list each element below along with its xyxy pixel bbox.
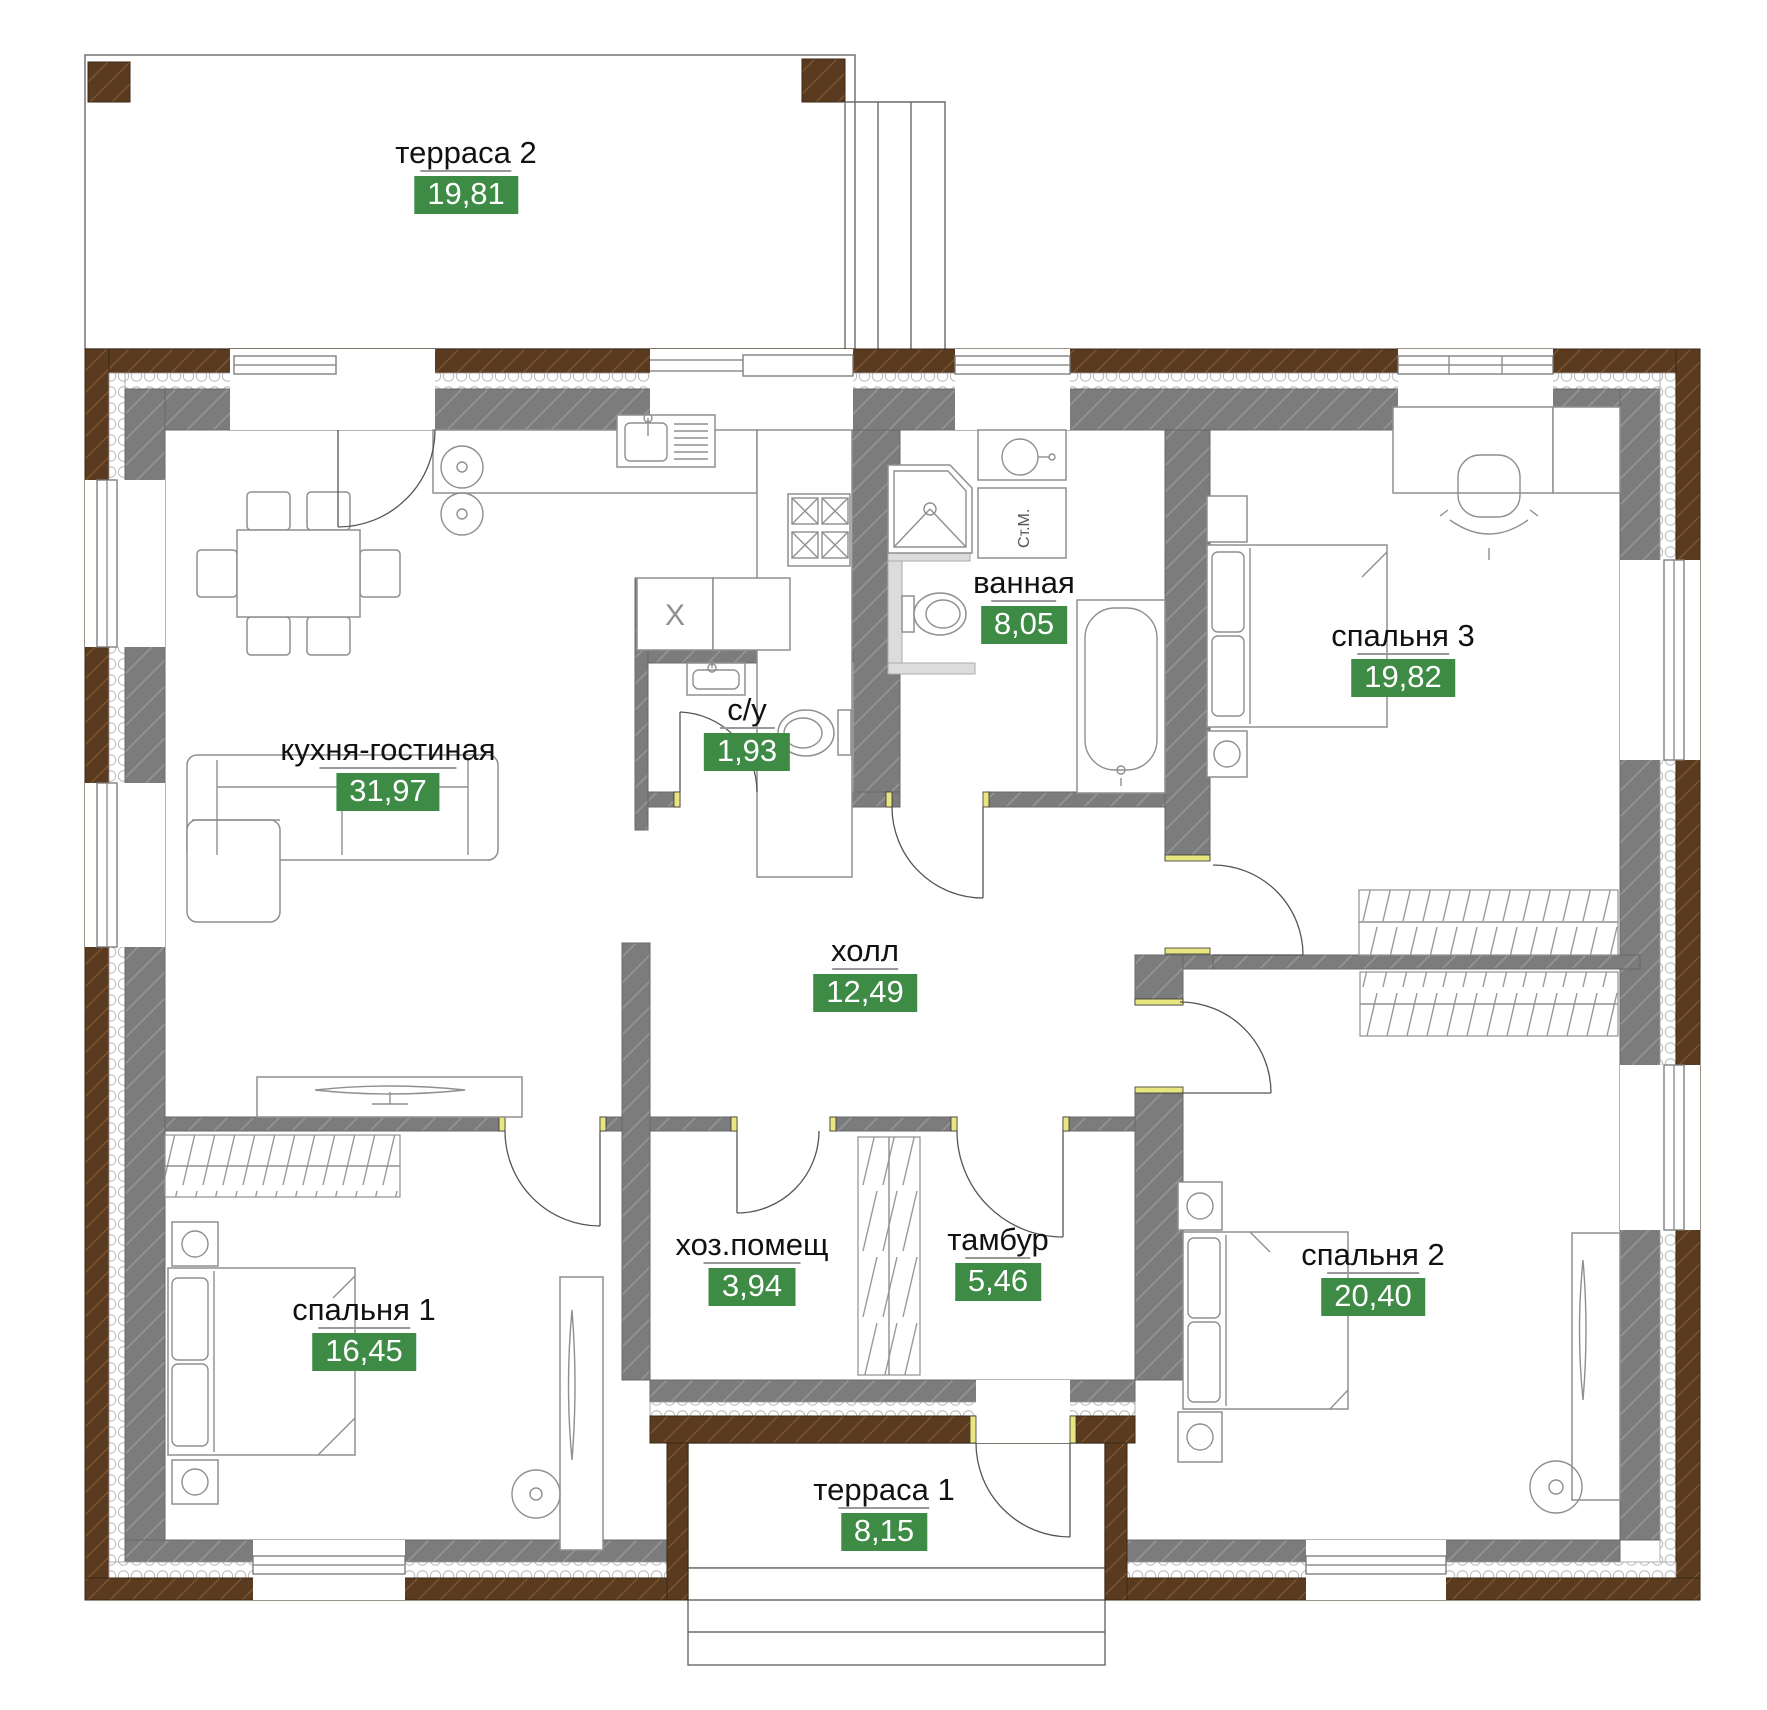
door-utility bbox=[737, 1131, 819, 1213]
window bbox=[234, 356, 336, 374]
wardrobe bbox=[165, 1135, 400, 1197]
room-label-utility: хоз.помещ3,94 bbox=[676, 1228, 829, 1306]
door-entrance bbox=[976, 1443, 1070, 1537]
nightstand bbox=[1178, 1182, 1222, 1230]
door-bedroom-3 bbox=[1213, 865, 1303, 955]
washing-machine-label: Ст.М. bbox=[1016, 509, 1033, 548]
nightstand bbox=[1207, 731, 1247, 777]
nightstand bbox=[1178, 1412, 1222, 1462]
tv-cabinet bbox=[257, 1077, 522, 1117]
room-name: спальня 3 bbox=[1331, 619, 1475, 653]
door-bathroom bbox=[892, 807, 983, 898]
label-underline bbox=[319, 767, 457, 769]
floor-plan-drawing: X bbox=[0, 0, 1767, 1710]
area-badge: 16,45 bbox=[312, 1333, 416, 1371]
desk-chair bbox=[512, 1470, 560, 1518]
floor-plan: X bbox=[0, 0, 1767, 1710]
window bbox=[1664, 1065, 1684, 1230]
room-label-bathroom: ванная8,05 bbox=[973, 566, 1075, 644]
appliance-niche: X bbox=[637, 578, 790, 650]
room-label-terrace-1: терраса 18,15 bbox=[813, 1473, 954, 1551]
room-name: с/у bbox=[704, 693, 790, 727]
room-name: хоз.помещ bbox=[676, 1228, 829, 1262]
terrace-column bbox=[88, 62, 130, 102]
label-underline bbox=[719, 727, 774, 729]
door-bedroom-1 bbox=[505, 1131, 600, 1226]
washbasin-vanity bbox=[978, 430, 1066, 480]
label-underline bbox=[832, 968, 898, 970]
desk bbox=[1572, 1233, 1620, 1500]
room-name: кухня-гостиная bbox=[280, 733, 495, 767]
window bbox=[97, 480, 117, 647]
label-underline bbox=[966, 1257, 1031, 1259]
desk bbox=[1393, 407, 1620, 493]
label-underline bbox=[991, 600, 1056, 602]
window bbox=[253, 1556, 405, 1574]
room-label-bedroom-1: спальня 116,45 bbox=[292, 1293, 436, 1371]
vestibule-closet bbox=[858, 1137, 920, 1375]
area-badge: 8,15 bbox=[841, 1513, 927, 1551]
area-badge: 8,05 bbox=[981, 606, 1067, 644]
kitchen-sink bbox=[617, 414, 715, 467]
room-name: спальня 1 bbox=[292, 1293, 436, 1327]
area-badge: 12,49 bbox=[813, 974, 917, 1012]
door-bedroom-2 bbox=[1180, 1002, 1271, 1093]
room-label-hall: холл12,49 bbox=[813, 934, 917, 1012]
shower bbox=[888, 465, 972, 553]
stove bbox=[788, 494, 850, 566]
label-underline bbox=[1357, 653, 1449, 655]
nightstand bbox=[1207, 496, 1247, 542]
window bbox=[97, 783, 117, 947]
room-name: ванная bbox=[973, 566, 1075, 600]
area-badge: 5,46 bbox=[955, 1263, 1041, 1301]
dining-table bbox=[197, 492, 400, 655]
room-label-vestibule: тамбур5,46 bbox=[947, 1223, 1049, 1301]
label-underline bbox=[421, 170, 512, 172]
window bbox=[1306, 1556, 1446, 1574]
washbasin bbox=[687, 660, 745, 695]
room-label-terrace-2: терраса 219,81 bbox=[395, 136, 536, 214]
area-badge: 1,93 bbox=[704, 733, 790, 771]
room-name: тамбур bbox=[947, 1223, 1049, 1257]
terrace-1-steps bbox=[688, 1568, 1105, 1665]
window bbox=[1664, 560, 1684, 760]
area-badge: 20,40 bbox=[1321, 1278, 1425, 1316]
terrace-column bbox=[802, 59, 845, 102]
toilet bbox=[902, 593, 966, 635]
area-badge: 19,81 bbox=[414, 176, 518, 214]
wardrobe bbox=[1359, 890, 1618, 955]
room-name: терраса 2 bbox=[395, 136, 536, 170]
area-badge: 3,94 bbox=[709, 1268, 795, 1306]
room-label-wc: с/у1,93 bbox=[704, 693, 790, 771]
area-badge: 31,97 bbox=[336, 773, 440, 811]
room-name: спальня 2 bbox=[1301, 1238, 1445, 1272]
window bbox=[1398, 356, 1553, 374]
room-label-bedroom-2: спальня 220,40 bbox=[1301, 1238, 1445, 1316]
nightstand bbox=[172, 1460, 218, 1504]
nightstand bbox=[172, 1222, 218, 1266]
appliance-x-label: X bbox=[665, 599, 685, 632]
label-underline bbox=[318, 1327, 410, 1329]
room-label-kitchen-living: кухня-гостиная31,97 bbox=[280, 733, 495, 811]
door-terrace-2 bbox=[338, 430, 435, 527]
room-name: холл bbox=[813, 934, 917, 968]
label-underline bbox=[1327, 1272, 1419, 1274]
room-label-bedroom-3: спальня 319,82 bbox=[1331, 619, 1475, 697]
room-name: терраса 1 bbox=[813, 1473, 954, 1507]
desk bbox=[560, 1277, 603, 1550]
label-underline bbox=[839, 1507, 930, 1509]
wardrobe bbox=[1360, 972, 1618, 1036]
washing-machine: Ст.М. bbox=[978, 488, 1066, 558]
area-badge: 19,82 bbox=[1351, 659, 1455, 697]
window bbox=[955, 356, 1070, 374]
bathtub bbox=[1077, 600, 1165, 793]
terrace-2-steps bbox=[845, 102, 945, 349]
label-underline bbox=[703, 1262, 801, 1264]
